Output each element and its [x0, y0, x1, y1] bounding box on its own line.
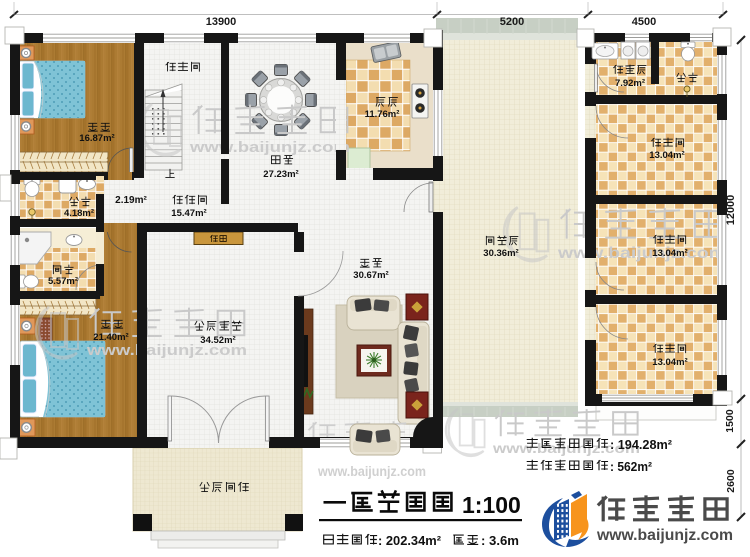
svg-text:5.57m²: 5.57m²	[48, 276, 78, 287]
svg-text:16.87m²: 16.87m²	[79, 133, 114, 144]
svg-text:www.baijunjz.com: www.baijunjz.com	[596, 527, 733, 544]
svg-text:7.92m²: 7.92m²	[615, 78, 645, 89]
svg-text:15.47m²: 15.47m²	[171, 208, 206, 219]
svg-text:13900: 13900	[206, 16, 237, 28]
svg-text:21.40m²: 21.40m²	[93, 332, 128, 343]
svg-text:: 562m²: : 562m²	[610, 459, 653, 474]
svg-text:: 194.28m²: : 194.28m²	[610, 437, 673, 452]
svg-text:30.36m²: 30.36m²	[483, 248, 518, 259]
svg-text:4500: 4500	[632, 16, 656, 28]
svg-text:4.18m²: 4.18m²	[64, 208, 94, 219]
svg-text:5200: 5200	[500, 16, 524, 28]
svg-text:13.04m²: 13.04m²	[652, 248, 687, 259]
svg-text:: 3.6m: : 3.6m	[481, 533, 519, 548]
svg-text:www.baijunjz.com: www.baijunjz.com	[189, 139, 350, 156]
svg-text:30.67m²: 30.67m²	[353, 270, 388, 281]
svg-text:: 202.34m²: : 202.34m²	[378, 533, 442, 548]
svg-text:13.04m²: 13.04m²	[649, 150, 684, 161]
svg-text:1500: 1500	[724, 409, 736, 433]
svg-text:27.23m²: 27.23m²	[263, 169, 298, 180]
svg-text:www.baijunjz.com: www.baijunjz.com	[317, 463, 426, 479]
svg-text:13.04m²: 13.04m²	[652, 357, 687, 368]
svg-text:www.baijunjz.com: www.baijunjz.com	[557, 245, 726, 262]
svg-text:34.52m²: 34.52m²	[200, 335, 235, 346]
svg-text:12000: 12000	[725, 195, 737, 226]
svg-text:11.76m²: 11.76m²	[365, 109, 400, 120]
svg-text:1:100: 1:100	[462, 492, 521, 518]
svg-text:2600: 2600	[725, 469, 737, 493]
svg-text:2.19m²: 2.19m²	[115, 195, 147, 206]
